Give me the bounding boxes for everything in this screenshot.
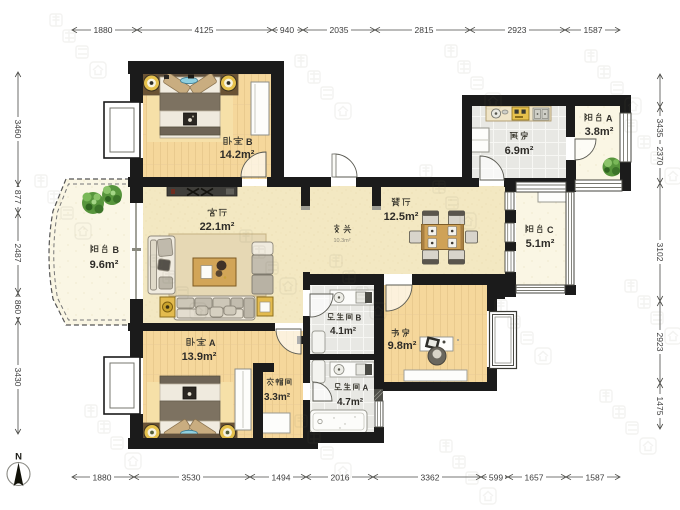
- svg-text:22.1m²: 22.1m²: [200, 221, 235, 233]
- svg-text:3.8m²: 3.8m²: [585, 126, 614, 138]
- svg-text:2923: 2923: [655, 333, 665, 352]
- svg-text:1880: 1880: [93, 472, 112, 482]
- svg-text:3102: 3102: [655, 243, 665, 262]
- svg-text:877: 877: [13, 190, 23, 204]
- svg-text:2815: 2815: [415, 25, 434, 35]
- svg-text:1880: 1880: [94, 25, 113, 35]
- svg-text:3362: 3362: [421, 472, 440, 482]
- svg-text:12.5m²: 12.5m²: [384, 211, 419, 223]
- svg-text:1657: 1657: [525, 472, 544, 482]
- svg-text:N: N: [15, 452, 22, 463]
- svg-text:3.3m²: 3.3m²: [264, 392, 291, 403]
- svg-text:4.7m²: 4.7m²: [337, 397, 364, 408]
- svg-text:3460: 3460: [13, 120, 23, 139]
- svg-text:3435: 3435: [655, 119, 665, 138]
- svg-text:C: C: [547, 225, 554, 235]
- svg-text:940: 940: [280, 25, 294, 35]
- svg-text:3530: 3530: [182, 472, 201, 482]
- svg-text:6.9m²: 6.9m²: [505, 145, 534, 157]
- svg-text:2487: 2487: [13, 244, 23, 263]
- svg-text:1587: 1587: [586, 472, 605, 482]
- svg-text:860: 860: [13, 300, 23, 314]
- svg-text:A: A: [363, 384, 369, 393]
- svg-text:9.6m²: 9.6m²: [90, 259, 119, 271]
- svg-text:10.3m²: 10.3m²: [333, 238, 350, 244]
- svg-text:14.2m²: 14.2m²: [220, 149, 255, 161]
- svg-text:9.8m²: 9.8m²: [388, 340, 417, 352]
- svg-text:599: 599: [489, 472, 503, 482]
- svg-text:4125: 4125: [195, 25, 214, 35]
- svg-text:13.9m²: 13.9m²: [182, 351, 217, 363]
- svg-text:1587: 1587: [584, 25, 603, 35]
- svg-text:A: A: [606, 114, 613, 124]
- svg-text:3430: 3430: [13, 368, 23, 387]
- svg-text:2035: 2035: [330, 25, 349, 35]
- svg-text:4.1m²: 4.1m²: [330, 326, 357, 337]
- svg-text:B: B: [356, 314, 362, 323]
- svg-text:1475: 1475: [655, 397, 665, 416]
- svg-text:2923: 2923: [508, 25, 527, 35]
- svg-text:A: A: [209, 338, 216, 348]
- svg-text:B: B: [246, 137, 253, 147]
- svg-text:B: B: [113, 245, 120, 255]
- svg-text:1494: 1494: [272, 472, 291, 482]
- svg-text:5.1m²: 5.1m²: [526, 238, 555, 250]
